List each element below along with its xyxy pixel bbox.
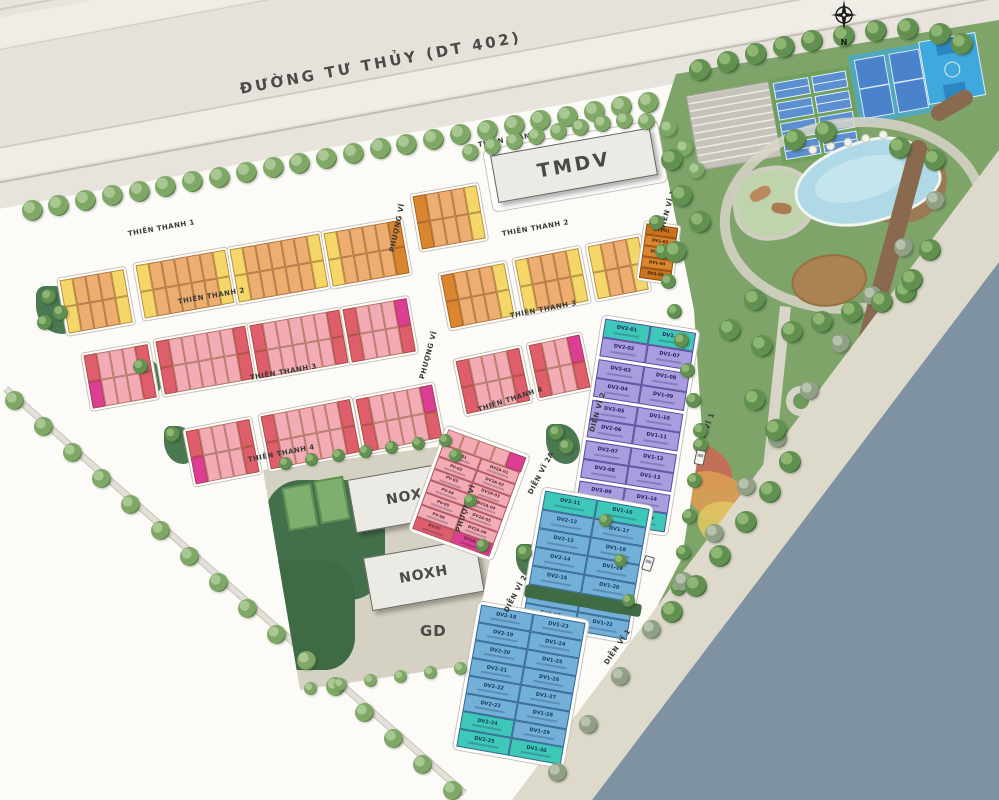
tree-icon (454, 662, 467, 675)
tree-icon (674, 333, 689, 348)
tree-icon (355, 703, 374, 722)
tree-icon (37, 315, 52, 330)
tree-icon (462, 144, 479, 161)
tree-icon (550, 123, 567, 140)
tree-icon (396, 134, 417, 155)
tree-icon (121, 495, 140, 514)
tree-icon (680, 363, 695, 378)
tree-icon (865, 20, 887, 42)
tree-icon (289, 153, 310, 174)
tree-icon (484, 138, 501, 155)
tree-icon (548, 763, 567, 782)
tree-icon (476, 539, 489, 552)
tree-icon (897, 18, 919, 40)
badminton-court (814, 90, 852, 113)
tree-icon (671, 185, 693, 207)
lot-block (182, 415, 263, 487)
tree-icon (737, 477, 756, 496)
playground-animal-sculpture (748, 183, 773, 204)
compass-north-label: N (824, 38, 864, 47)
tree-icon (5, 391, 24, 410)
tree-icon (779, 451, 801, 473)
tree-icon (129, 181, 150, 202)
tree-icon (413, 755, 432, 774)
playground-animal-sculpture (771, 202, 792, 215)
tree-icon (34, 417, 53, 436)
tree-icon (236, 162, 257, 183)
lot-block (132, 246, 238, 322)
tree-icon (75, 190, 96, 211)
tree-icon (901, 269, 923, 291)
tree-icon (92, 469, 111, 488)
badminton-court (776, 97, 814, 120)
tree-icon (165, 427, 180, 442)
lot-code: DV1-04 (649, 260, 666, 267)
tree-icon (686, 393, 701, 408)
tree-icon (616, 112, 633, 129)
street-label-phuong-vi: PHƯỢNG VĨ (418, 330, 439, 380)
tree-icon (579, 715, 598, 734)
tree-icon (719, 319, 741, 341)
tree-icon (642, 620, 661, 639)
compass-rose: N (824, 0, 864, 52)
tree-icon (800, 381, 819, 400)
tree-icon (180, 547, 199, 566)
tree-icon (660, 120, 677, 137)
tree-icon (638, 92, 659, 113)
tree-icon (649, 215, 664, 230)
tree-icon (924, 149, 946, 171)
tree-icon (384, 729, 403, 748)
tree-icon (41, 289, 56, 304)
lot-block (409, 182, 489, 253)
tree-icon (889, 137, 911, 159)
tree-icon (370, 138, 391, 159)
tree-icon (182, 171, 203, 192)
tree-icon (871, 291, 893, 313)
tree-icon (744, 289, 766, 311)
tree-icon (449, 449, 462, 462)
gd-area-label: GD (420, 622, 447, 640)
tree-icon (709, 545, 731, 567)
tree-icon (599, 514, 612, 527)
tree-icon (676, 545, 691, 560)
tree-icon (831, 334, 850, 353)
tree-icon (717, 51, 739, 73)
tree-icon (688, 162, 705, 179)
tree-icon (517, 545, 532, 560)
tree-icon (63, 443, 82, 462)
tree-icon (614, 554, 627, 567)
tree-icon (638, 113, 655, 130)
tree-icon (926, 191, 945, 210)
tree-icon (464, 494, 477, 507)
tree-icon (22, 200, 43, 221)
tree-icon (334, 678, 347, 691)
tree-icon (811, 311, 833, 333)
tree-icon (667, 304, 682, 319)
tree-icon (267, 625, 286, 644)
tree-icon (549, 425, 564, 440)
tree-icon (133, 359, 148, 374)
tree-icon (443, 781, 462, 800)
basketball-center-circle (943, 60, 962, 79)
tree-icon (744, 389, 766, 411)
tree-icon (528, 128, 545, 145)
tree-icon (506, 133, 523, 150)
tree-icon (745, 43, 767, 65)
master-plan-map: ĐƯỜNG TƯ THỦY (DT 402)NOXHNOXHGDTMDVDV2-… (0, 0, 999, 800)
pool-inner (810, 149, 909, 209)
tree-icon (394, 670, 407, 683)
tree-icon (801, 30, 823, 52)
tree-icon (364, 674, 377, 687)
tree-icon (439, 434, 452, 447)
tree-icon (151, 521, 170, 540)
lot-block (437, 259, 518, 331)
tree-icon (685, 575, 707, 597)
tree-icon (841, 301, 863, 323)
badminton-court (773, 77, 811, 100)
tree-icon (316, 148, 337, 169)
lot-block (56, 266, 136, 337)
tree-icon (359, 445, 372, 458)
tree-icon (951, 33, 973, 55)
tennis-court (854, 55, 895, 119)
tree-icon (689, 211, 711, 233)
badminton-court (811, 70, 849, 93)
tree-icon (611, 667, 630, 686)
tree-icon (693, 423, 708, 438)
tree-icon (751, 335, 773, 357)
tree-icon (781, 321, 803, 343)
tree-icon (622, 594, 635, 607)
tree-icon (332, 449, 345, 462)
tree-icon (735, 511, 757, 533)
tree-icon (572, 119, 589, 136)
lot-block (80, 341, 160, 412)
tree-icon (343, 143, 364, 164)
tree-icon (53, 305, 68, 320)
tree-icon (682, 509, 697, 524)
street-label-thien-thanh-2: THIÊN THANH 2 (501, 218, 569, 238)
tree-icon (765, 419, 787, 441)
compass-icon (826, 0, 862, 38)
tree-icon (919, 239, 941, 261)
tree-icon (209, 167, 230, 188)
tree-icon (48, 195, 69, 216)
tree-icon (661, 149, 683, 171)
tree-icon (784, 129, 806, 151)
lot-block (339, 295, 419, 366)
tree-icon (759, 481, 781, 503)
tree-icon (102, 185, 123, 206)
tree-icon (929, 23, 951, 45)
tree-icon (305, 453, 318, 466)
tree-icon (559, 439, 574, 454)
tree-icon (304, 682, 317, 695)
tree-icon (423, 129, 444, 150)
tree-icon (424, 666, 437, 679)
tree-icon (594, 115, 611, 132)
tree-icon (209, 573, 228, 592)
tree-icon (773, 36, 795, 58)
tree-icon (279, 457, 292, 470)
tree-icon (263, 157, 284, 178)
tree-icon (155, 176, 176, 197)
tree-icon (450, 124, 471, 145)
tree-icon (238, 599, 257, 618)
tree-icon (689, 59, 711, 81)
tree-icon (665, 241, 687, 263)
tree-icon (412, 437, 425, 450)
tree-icon (815, 121, 837, 143)
tree-icon (297, 651, 316, 670)
street-label-thien-thanh-1: THIÊN THANH 1 (127, 218, 195, 238)
lot-block (152, 322, 258, 398)
tree-icon (661, 601, 683, 623)
tree-icon (661, 274, 676, 289)
